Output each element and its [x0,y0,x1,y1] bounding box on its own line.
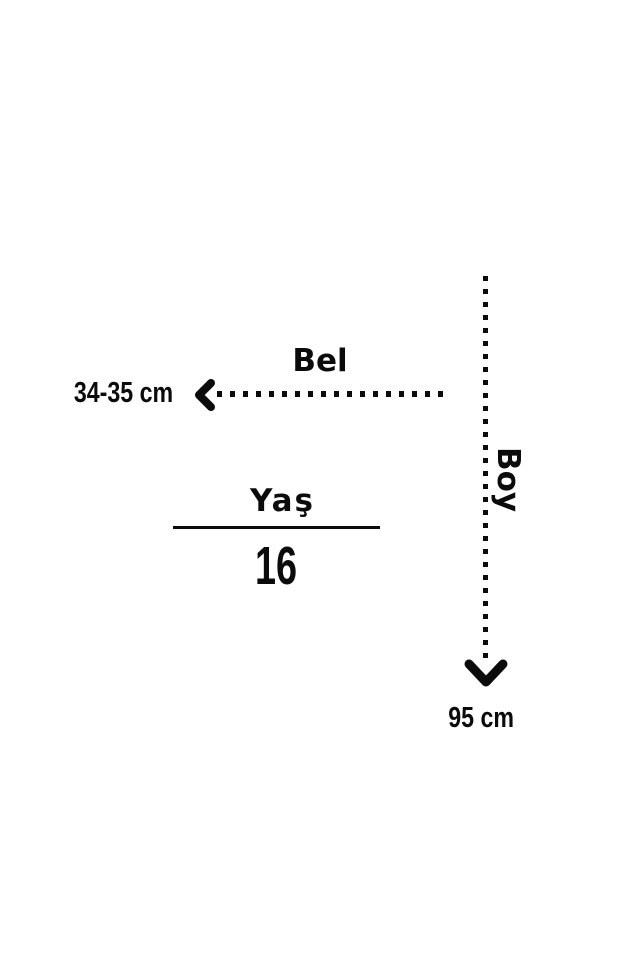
waist-dotted-line [217,391,449,397]
arrow-left-icon [192,378,216,416]
age-divider-line [173,526,380,529]
height-label: Boy [492,447,523,512]
arrow-down-icon [463,657,509,693]
waist-label: Bel [250,346,390,377]
height-value: 95 cm [430,704,532,733]
waist-value: 34-35 cm [40,379,173,408]
age-label: Yaş [200,486,365,517]
age-value: 16 [200,539,353,593]
size-diagram: Bel 34-35 cm Boy 95 cm Yaş 16 [0,0,640,960]
height-dotted-line [483,276,488,658]
